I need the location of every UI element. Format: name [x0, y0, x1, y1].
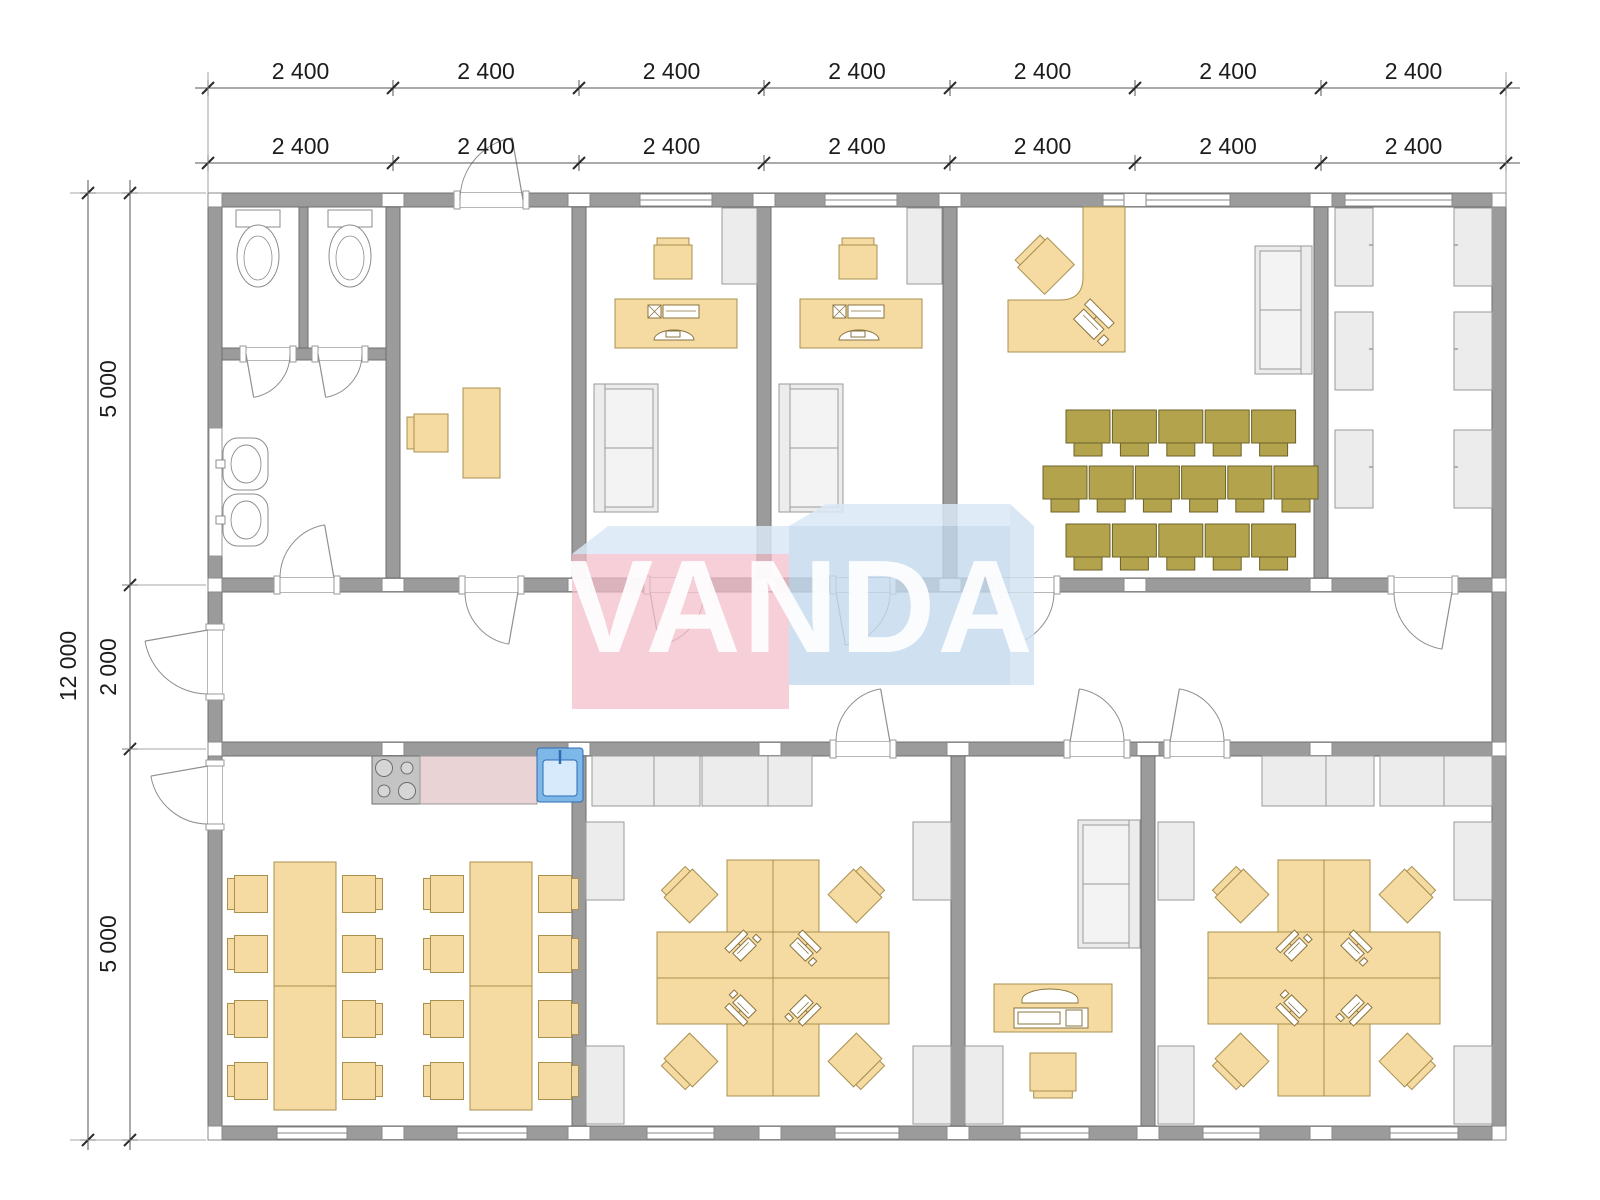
module-joint — [1310, 579, 1332, 592]
chair-seat — [431, 1063, 464, 1100]
dim-label: 2 400 — [1385, 58, 1443, 84]
reception-desk — [463, 388, 500, 478]
chair-seat — [839, 245, 877, 279]
floor-plan-canvas: VANDA 2 4002 4002 4002 4002 4002 4002 40… — [0, 0, 1600, 1200]
locker-cabinet — [1454, 430, 1492, 508]
door-leaf — [325, 525, 334, 578]
chair-back — [407, 417, 414, 449]
cabinet — [1158, 822, 1194, 900]
module-joint — [1492, 742, 1506, 756]
chair-seat — [1228, 466, 1272, 499]
cabinet — [1158, 1046, 1194, 1124]
toilet-bowl — [237, 225, 279, 287]
chair-seat — [828, 869, 882, 923]
door-swing — [151, 766, 208, 824]
meeting-sofa — [1255, 246, 1312, 374]
door-arc — [1394, 592, 1442, 649]
chair-seat — [1018, 238, 1075, 295]
chair-back — [1074, 557, 1102, 570]
sofa-cushion — [1260, 251, 1301, 310]
door-opening — [1394, 578, 1452, 592]
chair-seat — [1030, 1053, 1076, 1091]
chair-seat — [1215, 869, 1269, 923]
watermark: VANDA — [565, 504, 1035, 709]
door-jamb — [1054, 576, 1060, 594]
pc-unit — [1066, 1010, 1082, 1026]
dim-label: 2 400 — [1385, 133, 1443, 159]
sofa-cushion — [1083, 825, 1129, 884]
door-opening — [1070, 742, 1124, 756]
door-jamb — [518, 576, 524, 594]
module-joint — [947, 743, 969, 756]
cabinet — [907, 208, 942, 284]
chair-seat — [431, 936, 464, 973]
dim-label: 2 400 — [457, 58, 515, 84]
chair-seat — [664, 1033, 718, 1087]
office-chair — [1210, 1033, 1269, 1092]
chair-back — [1034, 1091, 1073, 1098]
door-opening — [465, 578, 518, 592]
cabinet — [722, 208, 757, 284]
door-jamb — [312, 346, 318, 362]
chair-seat — [539, 1063, 572, 1100]
door-opening — [280, 578, 334, 592]
cabinet — [913, 822, 951, 900]
door-jamb — [334, 576, 340, 594]
module-joint — [939, 194, 961, 207]
door-jamb — [1124, 740, 1130, 758]
conference-chair — [1252, 524, 1296, 570]
kitchen-sink — [537, 748, 583, 802]
module-joint — [1310, 194, 1332, 207]
dining-chair — [424, 1063, 464, 1100]
chair-back — [1167, 557, 1195, 570]
wall-cabinet — [592, 756, 700, 806]
office-chair — [1030, 1053, 1076, 1098]
chair-back — [228, 938, 235, 969]
chair-seat — [1066, 524, 1110, 557]
door-swing — [465, 592, 518, 644]
washbasin — [216, 438, 268, 490]
dining-chair — [228, 936, 268, 973]
desk-item — [666, 331, 680, 337]
door-arc — [1179, 689, 1224, 742]
wall-cabinet — [1262, 756, 1374, 806]
chair-back — [1282, 499, 1310, 512]
chair-seat — [343, 1001, 376, 1038]
door-leaf — [1442, 592, 1452, 649]
chair-seat — [343, 1063, 376, 1100]
module-joint — [759, 1127, 781, 1140]
door-jamb — [1452, 576, 1458, 594]
module-joint — [759, 743, 781, 756]
wall — [1314, 207, 1328, 578]
chair-back — [1260, 443, 1288, 456]
module-joint — [1492, 1126, 1506, 1140]
chair-back — [1190, 499, 1218, 512]
basin-faucet — [216, 460, 225, 468]
chair-back — [376, 878, 383, 909]
door-jamb — [206, 760, 224, 766]
door-jamb — [240, 346, 246, 362]
keyboard-keys — [1018, 1012, 1060, 1024]
dim-label: 5 000 — [95, 915, 121, 973]
chair-seat — [1379, 1033, 1433, 1087]
chair-seat — [235, 936, 268, 973]
chair-back — [1097, 499, 1125, 512]
office-chair — [1379, 1033, 1438, 1092]
conference-chair — [1089, 466, 1133, 512]
chair-seat — [1089, 466, 1133, 499]
dim-label: 2 400 — [643, 133, 701, 159]
office-chair — [1210, 864, 1269, 923]
chair-back — [376, 938, 383, 969]
wall — [386, 207, 400, 578]
chair-back — [424, 938, 431, 969]
washbasin — [216, 494, 268, 546]
door-swing — [280, 525, 334, 578]
dining-table — [470, 862, 532, 986]
chair-back — [657, 238, 689, 245]
door-jamb — [1224, 740, 1230, 758]
dim-label: 2 400 — [457, 133, 515, 159]
module-joint — [382, 743, 404, 756]
chair-seat — [1252, 410, 1296, 443]
chair-back — [228, 1065, 235, 1096]
chair-seat — [1205, 524, 1249, 557]
l-shaped-desk — [1008, 207, 1125, 352]
chair-back — [1143, 499, 1171, 512]
stove-burner — [378, 785, 390, 797]
chair-seat — [1159, 524, 1203, 557]
module-joint — [208, 578, 222, 592]
basin-faucet — [216, 516, 225, 524]
door-arc — [151, 776, 208, 824]
floor-plan-page: VANDA 2 4002 4002 4002 4002 4002 4002 40… — [0, 0, 1600, 1200]
door-jamb — [206, 694, 224, 700]
dim-label: 2 400 — [272, 58, 330, 84]
conference-chair — [1066, 410, 1110, 456]
chair-seat — [1274, 466, 1318, 499]
dining-table-group — [470, 862, 532, 1110]
toilet — [236, 210, 280, 287]
chair-back — [842, 238, 874, 245]
conference-chair — [1252, 410, 1296, 456]
dining-chair — [228, 876, 268, 913]
office-desk-group — [615, 299, 737, 348]
chair-seat — [343, 936, 376, 973]
chair-back — [424, 1065, 431, 1096]
door-jamb — [1064, 740, 1070, 758]
chair-seat — [1215, 1033, 1269, 1087]
chair-seat — [654, 245, 692, 279]
cabinet — [586, 822, 624, 900]
office-chair — [839, 238, 877, 279]
locker-cabinet — [1335, 208, 1373, 286]
office-chair — [654, 238, 692, 279]
watermark-text: VANDA — [565, 533, 1035, 680]
chair-back — [1120, 557, 1148, 570]
module-joint — [1310, 1127, 1332, 1140]
door-swing — [1170, 689, 1224, 742]
locker-cabinet — [1454, 208, 1492, 286]
cabinet — [586, 1046, 624, 1124]
chair-back — [228, 1003, 235, 1034]
locker-cabinet — [1335, 430, 1373, 508]
dining-chair — [343, 876, 383, 913]
chair-seat — [664, 869, 718, 923]
module-joint — [568, 1127, 590, 1140]
locker-cabinet — [1335, 312, 1373, 390]
dim-label: 2 400 — [1014, 133, 1072, 159]
door-jamb — [523, 191, 529, 209]
chair-seat — [1252, 524, 1296, 557]
dining-chair — [228, 1001, 268, 1038]
chair-back — [1213, 443, 1241, 456]
module-joint — [1492, 193, 1506, 207]
conference-chair — [1182, 466, 1226, 512]
door-arc — [280, 525, 325, 578]
chair-seat — [539, 936, 572, 973]
locker-cabinet — [1454, 312, 1492, 390]
door-jamb — [459, 576, 465, 594]
cabinet — [1454, 822, 1492, 900]
chair-back — [1213, 557, 1241, 570]
chair-back — [376, 1065, 383, 1096]
door-opening — [836, 742, 890, 756]
kitchen-counter — [420, 756, 537, 804]
door-arc — [465, 592, 509, 644]
dining-table-group — [274, 862, 336, 1110]
dining-table — [274, 986, 336, 1110]
dim-label: 2 000 — [95, 638, 121, 696]
office-chair — [407, 414, 448, 452]
conference-chair — [1205, 524, 1249, 570]
conference-chair — [1159, 524, 1203, 570]
chair-back — [376, 1003, 383, 1034]
sofa-back — [1129, 820, 1140, 948]
stove-burner — [376, 760, 393, 777]
chair-back — [1236, 499, 1264, 512]
chair-seat — [1043, 466, 1087, 499]
dining-chair — [539, 936, 579, 973]
office-sofa — [594, 384, 658, 512]
conference-chair — [1135, 466, 1179, 512]
dim-label: 2 400 — [1199, 58, 1257, 84]
chair-seat — [1112, 410, 1156, 443]
door-swing — [1070, 689, 1124, 742]
conference-chair — [1112, 524, 1156, 570]
door-opening — [1170, 742, 1224, 756]
sofa-back — [594, 384, 605, 512]
office-chair — [828, 1033, 887, 1092]
conference-chair — [1274, 466, 1318, 512]
door-jamb — [830, 740, 836, 758]
chair-back — [1167, 443, 1195, 456]
chair-back — [228, 878, 235, 909]
door-leaf — [509, 592, 518, 644]
wall — [1492, 193, 1506, 1140]
module-joint — [1137, 1127, 1159, 1140]
chair-seat — [1112, 524, 1156, 557]
door-jamb — [1164, 740, 1170, 758]
office-chair — [659, 1033, 718, 1092]
door-opening — [460, 193, 523, 207]
sofa-cushion — [790, 389, 838, 448]
door-leaf — [145, 630, 208, 641]
door-opening — [246, 348, 290, 360]
wall — [1141, 756, 1155, 1126]
sofa-cushion — [605, 389, 653, 448]
conference-chair — [1066, 524, 1110, 570]
door-swing — [145, 630, 208, 694]
monitor — [848, 305, 884, 318]
dim-label: 2 400 — [272, 133, 330, 159]
chair-seat — [1379, 869, 1433, 923]
chair-seat — [235, 1063, 268, 1100]
chair-back — [424, 1003, 431, 1034]
dim-label: 2 400 — [1199, 133, 1257, 159]
dim-label: 2 400 — [1014, 58, 1072, 84]
conference-chair — [1228, 466, 1272, 512]
chair-seat — [1182, 466, 1226, 499]
chair-back — [572, 938, 579, 969]
chair-back — [572, 1065, 579, 1096]
door-leaf — [881, 689, 890, 742]
cabinet — [1454, 1046, 1492, 1124]
door-arc — [836, 689, 881, 742]
dining-chair — [424, 876, 464, 913]
door-opening — [208, 630, 222, 694]
door-opening — [318, 348, 362, 360]
door-arc — [1079, 689, 1124, 742]
wall — [299, 207, 308, 348]
wall-cabinet — [1380, 756, 1492, 806]
module-joint — [1492, 578, 1506, 592]
door-opening — [208, 766, 222, 824]
dining-chair — [343, 1063, 383, 1100]
watermark-box-top — [789, 504, 1010, 526]
door-leaf — [151, 766, 208, 776]
chair-seat — [539, 876, 572, 913]
sofa-back — [779, 384, 790, 512]
door-jamb — [890, 740, 896, 758]
chair-seat — [235, 1001, 268, 1038]
dim-label: 12 000 — [55, 631, 81, 701]
chair-back — [572, 878, 579, 909]
dim-label: 2 400 — [828, 133, 886, 159]
dim-label: 5 000 — [95, 360, 121, 418]
wall — [757, 207, 771, 578]
module-joint — [382, 194, 404, 207]
dim-label: 2 400 — [643, 58, 701, 84]
sofa-cushion — [1260, 310, 1301, 369]
module-joint — [1310, 743, 1332, 756]
toilet-tank — [328, 210, 372, 227]
office-sofa — [779, 384, 843, 512]
wall — [951, 756, 965, 1126]
module-joint — [568, 194, 590, 207]
chair-seat — [343, 876, 376, 913]
sofa-back — [1301, 246, 1312, 374]
sofa-cushion — [790, 448, 838, 507]
chair-seat — [828, 1033, 882, 1087]
dining-chair — [228, 1063, 268, 1100]
chair-seat — [1135, 466, 1179, 499]
dining-chair — [424, 1001, 464, 1038]
dim-label: 2 400 — [828, 58, 886, 84]
cabinet — [913, 1046, 951, 1124]
toilet-tank — [236, 210, 280, 227]
chair-seat — [235, 876, 268, 913]
desk-item — [851, 331, 865, 337]
dining-table — [274, 862, 336, 986]
door-swing — [836, 689, 890, 742]
module-joint — [208, 1126, 222, 1140]
office-chair — [1379, 864, 1438, 923]
module-joint — [208, 193, 222, 207]
chair-back — [572, 1003, 579, 1034]
chair-back — [1051, 499, 1079, 512]
office-desk-group — [800, 299, 922, 348]
module-joint — [1137, 743, 1159, 756]
chair-seat — [431, 1001, 464, 1038]
door-jamb — [454, 191, 460, 209]
dining-chair — [343, 936, 383, 973]
door-jamb — [290, 346, 296, 362]
vanity-counter — [209, 428, 222, 556]
wall — [572, 207, 586, 578]
conference-chair — [1043, 466, 1087, 512]
chair-seat — [1205, 410, 1249, 443]
door-jamb — [362, 346, 368, 362]
module-joint — [1124, 194, 1146, 207]
module-joint — [947, 1127, 969, 1140]
dining-chair — [539, 1063, 579, 1100]
manager-desk-group — [994, 984, 1112, 1032]
chair-seat — [539, 1001, 572, 1038]
door-jamb — [206, 624, 224, 630]
chair-back — [1074, 443, 1102, 456]
stove-burner — [399, 783, 416, 800]
dining-chair — [539, 876, 579, 913]
door-swing — [1394, 592, 1452, 649]
chair-back — [1120, 443, 1148, 456]
conference-chair — [1112, 410, 1156, 456]
chair-back — [1260, 557, 1288, 570]
sofa-cushion — [1083, 884, 1129, 943]
module-joint — [382, 579, 404, 592]
stove-burner — [401, 762, 413, 774]
chair-seat — [1159, 410, 1203, 443]
door-jamb — [1388, 576, 1394, 594]
door-jamb — [274, 576, 280, 594]
chair-seat — [1066, 410, 1110, 443]
manager-sofa — [1078, 820, 1140, 948]
chair-back — [424, 878, 431, 909]
sofa-cushion — [605, 448, 653, 507]
monitor — [663, 305, 699, 318]
module-joint — [382, 1127, 404, 1140]
dining-chair — [343, 1001, 383, 1038]
wall-cabinet — [702, 756, 812, 806]
door-jamb — [206, 824, 224, 830]
module-joint — [753, 194, 775, 207]
cabinet — [965, 1046, 1003, 1124]
module-joint — [208, 742, 222, 756]
door-leaf — [1170, 689, 1179, 742]
door-arc — [145, 641, 208, 694]
